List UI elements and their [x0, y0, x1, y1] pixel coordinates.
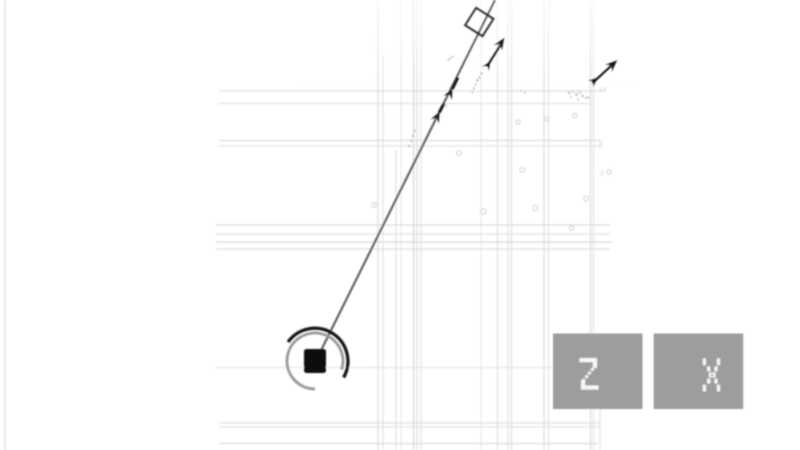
- svg-text:2: 2: [600, 170, 604, 177]
- svg-text:0: 0: [599, 142, 603, 149]
- svg-text:24: 24: [599, 87, 607, 94]
